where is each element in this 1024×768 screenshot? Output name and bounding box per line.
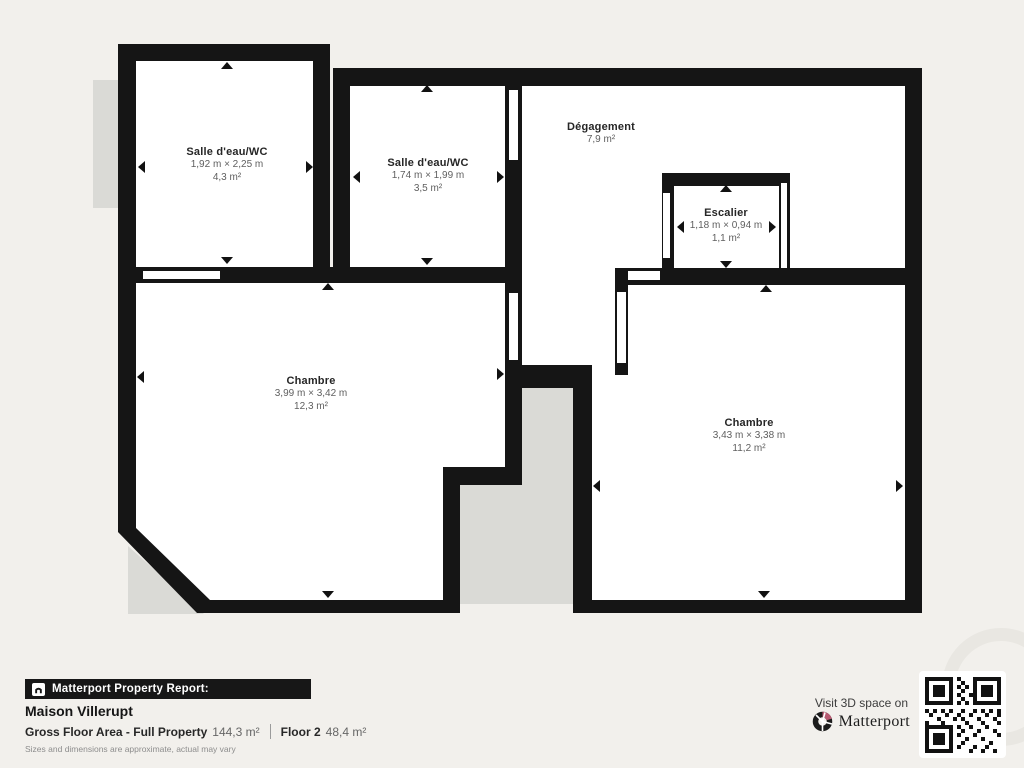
qr-code [919,671,1006,758]
room-name: Salle d'eau/WC [387,157,468,170]
room-name: Chambre [713,417,786,430]
room-label-chambre-2: Chambre 3,43 m × 3,38 m 11,2 m² [713,417,786,455]
room-dimensions: 1,74 m × 1,99 m [387,170,468,183]
gross-floor-area-label: Gross Floor Area - Full Property [25,725,207,739]
floor-label: Floor 2 [281,725,321,739]
room-dimensions: 1,92 m × 2,25 m [186,159,267,172]
room-area: 1,1 m² [690,233,763,246]
room-area: 11,2 m² [713,443,786,456]
room-area: 12,3 m² [275,401,348,414]
room-label-degagement: Dégagement 7,9 m² [567,121,635,147]
room-area: 4,3 m² [186,172,267,185]
room-name: Chambre [275,375,348,388]
qr-code-pattern [925,677,1001,753]
wall-room2-left [333,68,350,282]
wall-chambre2-left [573,372,592,613]
room-label-chambre-1: Chambre 3,99 m × 3,42 m 12,3 m² [275,375,348,413]
floor-area-stats: Gross Floor Area - Full Property 144,3 m… [25,724,366,739]
room-name: Dégagement [567,121,635,134]
room-dimensions: 3,43 m × 3,38 m [713,430,786,443]
stats-divider [270,724,271,739]
room-name: Salle d'eau/WC [186,146,267,159]
report-banner-label: Matterport Property Report: [52,683,209,695]
room-area: 3,5 m² [387,183,468,196]
disclaimer-text: Sizes and dimensions are approximate, ac… [25,744,236,754]
room-dimensions: 3,99 m × 3,42 m [275,388,348,401]
wall-right [905,68,922,613]
room-label-salle-eau-2: Salle d'eau/WC 1,74 m × 1,99 m 3,5 m² [387,157,468,195]
room-label-salle-eau-1: Salle d'eau/WC 1,92 m × 2,25 m 4,3 m² [186,146,267,184]
visit-3d-label: Visit 3D space on [815,696,908,710]
matterport-brand: Matterport [812,711,910,732]
floor-value: 48,4 m² [326,725,367,739]
floor-plan-page: Salle d'eau/WC 1,92 m × 2,25 m 4,3 m² Sa… [0,0,1024,768]
wall-top [333,68,922,86]
room-name: Escalier [690,207,763,220]
matterport-wordmark: Matterport [839,713,910,731]
property-name: Maison Villerupt [25,703,133,719]
room-area: 7,9 m² [567,134,635,147]
matterport-logo-icon [812,711,833,732]
matterport-house-icon [32,683,45,696]
matterport-report-banner: Matterport Property Report: [25,679,311,699]
room-dimensions: 1,18 m × 0,94 m [690,220,763,233]
floor-plan-svg [0,0,1024,768]
wall-chambre2-bottom [573,600,922,613]
room-label-escalier: Escalier 1,18 m × 0,94 m 1,1 m² [690,207,763,245]
gross-floor-area-value: 144,3 m² [212,725,259,739]
